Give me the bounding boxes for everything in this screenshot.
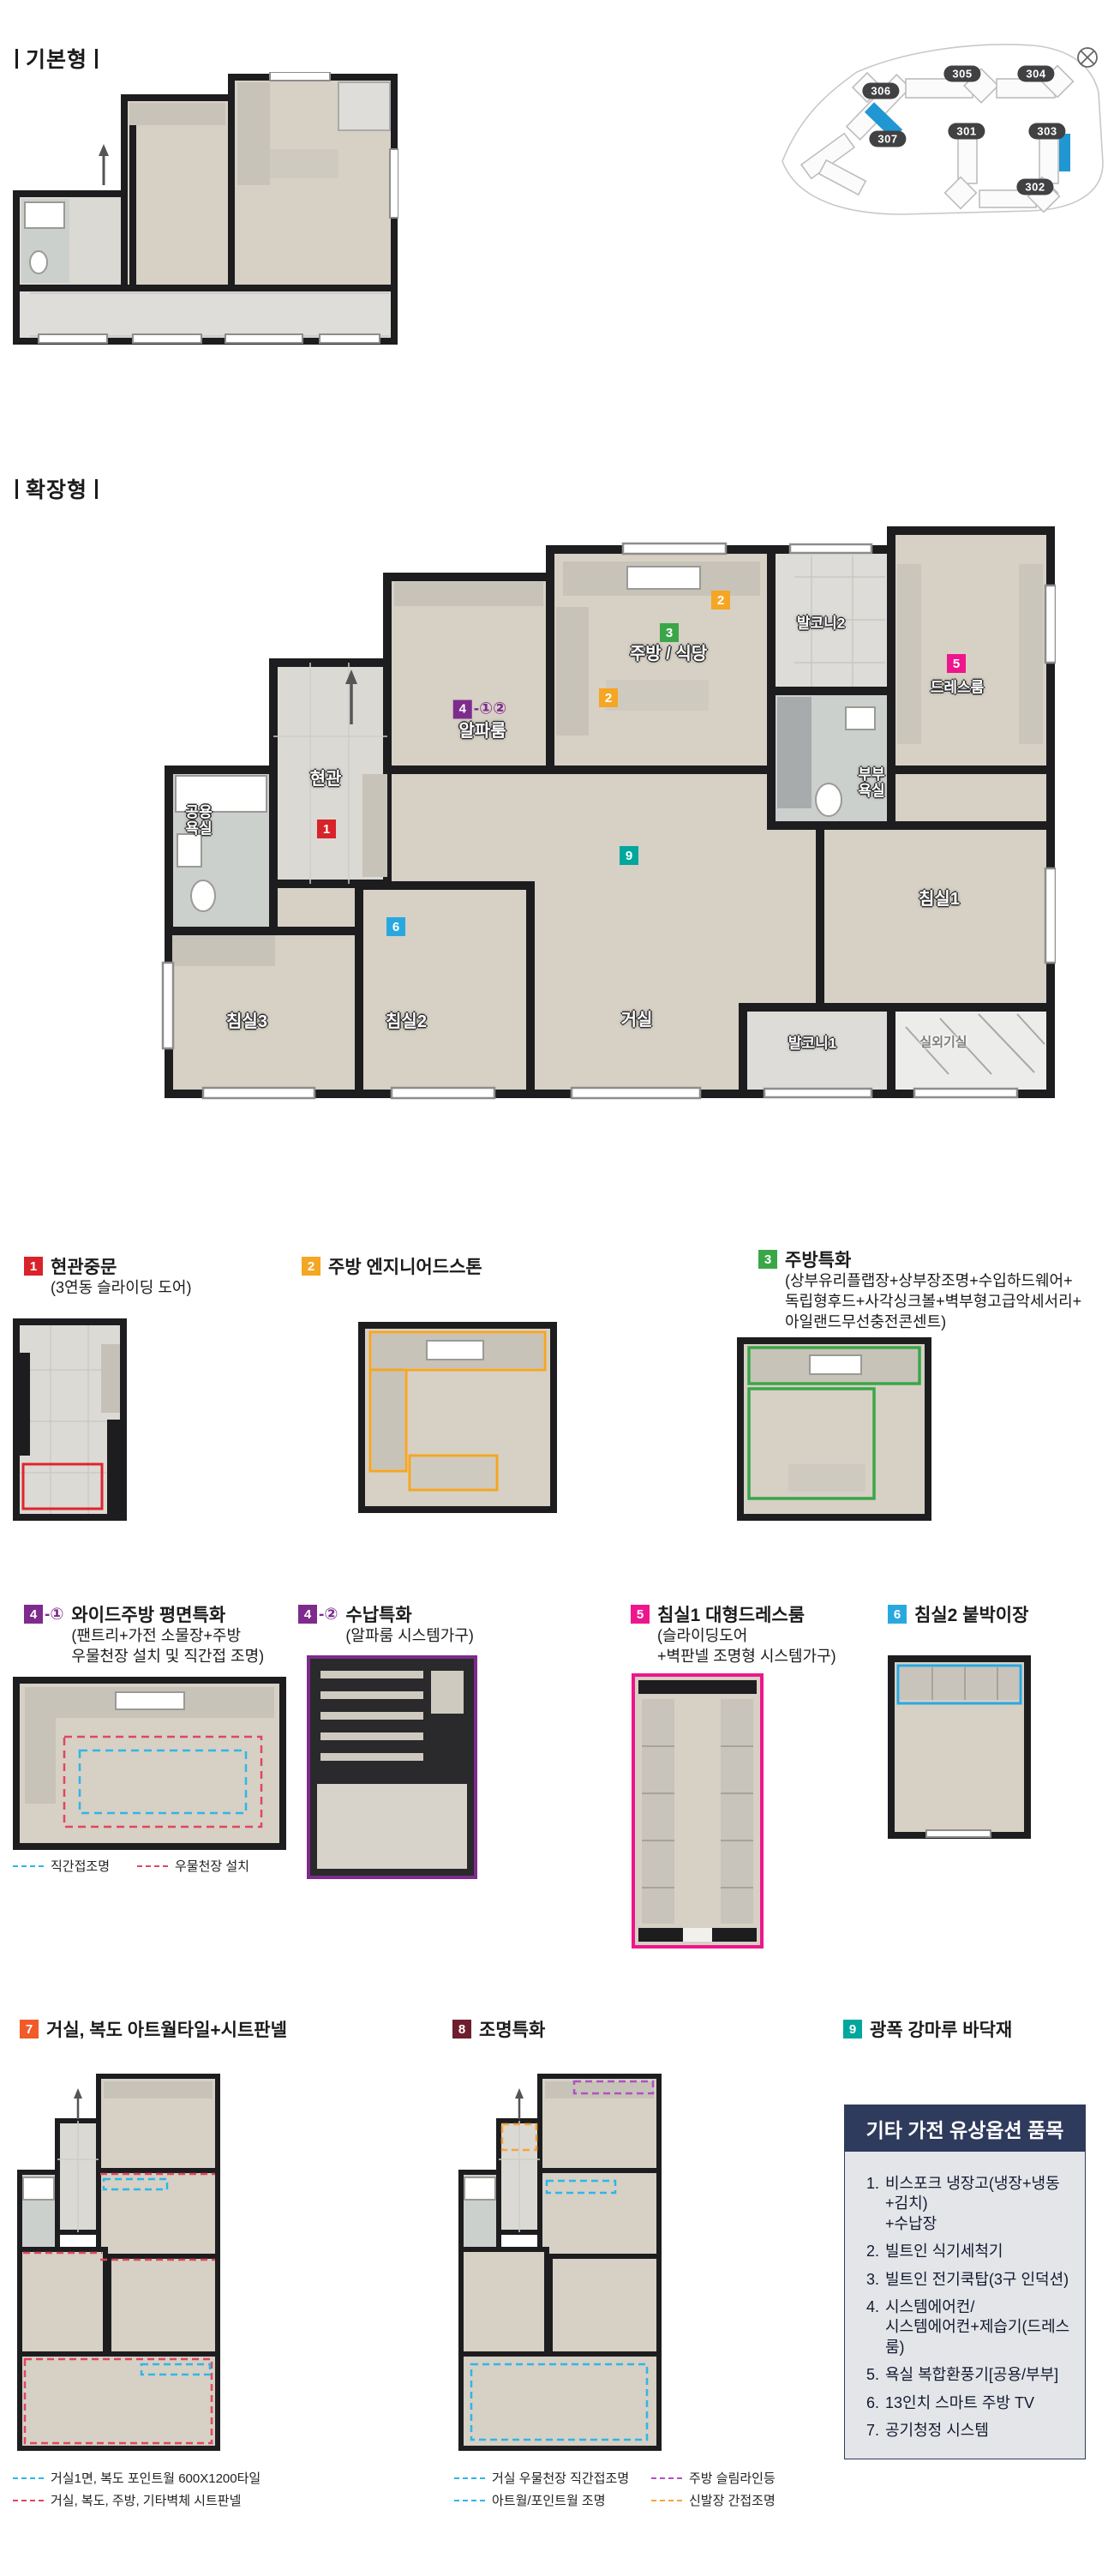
red-dash-icon xyxy=(137,1865,168,1867)
option-item: 3. 빌트인 전기쿡탑(3구 인덕션) xyxy=(860,2270,1075,2290)
legend-8-artwall: 아트월/포인트월 조명 xyxy=(454,2491,606,2509)
room-label-entry: 현관 xyxy=(310,770,342,789)
feature-8-title: 조명특화 xyxy=(479,2020,545,2041)
extended-type-label: 확장형 xyxy=(15,473,98,504)
feature-1-sub: (3연동 슬라이딩 도어) xyxy=(51,1278,191,1299)
feature-4-2-header: 4 -② 수납특화 (알파룸 시스템가구) xyxy=(298,1605,474,1647)
building-pill-303: 303 xyxy=(1028,123,1065,140)
extended-floor-plan xyxy=(143,525,1056,1102)
legend-8-shoe: 신발장 간접조명 xyxy=(651,2491,776,2509)
mini-plan-rooms xyxy=(461,2076,659,2448)
orange-dash-icon xyxy=(651,2500,682,2501)
feature-1-badge: 1 xyxy=(24,1257,43,1276)
compass-icon xyxy=(1078,48,1097,67)
cyan-dash-icon xyxy=(13,1865,44,1867)
cyan-dash-icon xyxy=(454,2500,485,2501)
room-label-ac-room: 실외기실 xyxy=(919,1036,967,1051)
divider-bar xyxy=(15,49,18,69)
feature-5-header: 5 침실1 대형드레스룸 (슬라이딩도어 +벽판넬 조명형 시스템가구) xyxy=(631,1605,836,1667)
page: 기본형 xyxy=(0,0,1114,2576)
feature-1-header: 1 현관중문 (3연동 슬라이딩 도어) xyxy=(24,1257,191,1299)
feature-4-2-sub1: (알파룸 시스템가구) xyxy=(345,1626,473,1647)
legend-8-living: 거실 우물천장 직간접조명 xyxy=(454,2469,629,2487)
red-dash-icon xyxy=(13,2500,44,2501)
room-label-kitchen: 주방 / 식당 xyxy=(630,645,707,664)
feature-6-header: 6 침실2 붙박이장 xyxy=(888,1605,1028,1626)
legend-7-sheet: 거실, 복도, 주방, 기타벽체 시트판넬 xyxy=(13,2491,241,2509)
paid-options-box: 기타 가전 유상옵션 품목 1. 비스포크 냉장고(냉장+냉동+김치)+수납장 … xyxy=(844,2105,1086,2459)
legend-4-1-indirect: 직간접조명 xyxy=(13,1857,110,1875)
feature-8-badge: 8 xyxy=(452,2020,471,2039)
option-item: 7. 공기청정 시스템 xyxy=(860,2421,1075,2441)
building-pill-304: 304 xyxy=(1017,66,1054,82)
cyan-dash-icon xyxy=(454,2477,485,2479)
feature-8-image xyxy=(454,2069,666,2455)
feature-3-sub2: 독립형후드+사각싱크볼+벽부형고급악세서리+ xyxy=(785,1292,1081,1312)
feature-4-2-suffix: -② xyxy=(319,1605,338,1624)
room-label-master-bath: 부부욕실 xyxy=(858,766,884,799)
plan-badge-6: 6 xyxy=(386,917,405,936)
feature-6-badge: 6 xyxy=(888,1605,907,1624)
legend-4-1-ceiling: 우물천장 설치 xyxy=(137,1857,249,1875)
feature-5-title: 침실1 대형드레스룸 xyxy=(657,1605,836,1626)
legend-8-kitchen: 주방 슬림라인등 xyxy=(651,2469,776,2487)
cyan-dash-icon xyxy=(13,2477,44,2479)
feature-3-badge: 3 xyxy=(758,1250,777,1269)
basic-floor-plan xyxy=(13,72,398,351)
building-pill-301: 301 xyxy=(948,123,985,140)
room-label-living: 거실 xyxy=(621,1011,653,1030)
feature-5-image xyxy=(632,1673,764,1949)
plan-badge-2b: 2 xyxy=(599,688,618,707)
paid-options-title: 기타 가전 유상옵션 품목 xyxy=(845,2105,1085,2152)
feature-4-1-image xyxy=(13,1677,286,1850)
feature-5-sub1: (슬라이딩도어 xyxy=(657,1626,836,1647)
feature-3-sub1: (상부유리플랩장+상부장조명+수입하드웨어+ xyxy=(785,1271,1081,1292)
room-label-bedroom3: 침실3 xyxy=(226,1012,267,1031)
feature-4-1-suffix: -① xyxy=(45,1605,63,1624)
option-item: 5. 욕실 복합환풍기[공용/부부] xyxy=(860,2365,1075,2385)
feature-4-2-badge: 4 xyxy=(298,1605,317,1624)
plan-badge-5: 5 xyxy=(947,654,966,673)
room-label-bedroom1: 침실1 xyxy=(919,890,960,909)
option-item: 6. 13인치 스마트 주방 TV xyxy=(860,2393,1075,2413)
plan-badge-4: 4-①② xyxy=(453,700,507,719)
room-label-common-bath: 공용욕실 xyxy=(185,804,212,837)
extended-type-text: 확장형 xyxy=(26,473,87,504)
feature-4-1-sub1: (팬트리+가전 소물장+주방 xyxy=(71,1626,264,1647)
divider-bar xyxy=(95,479,98,499)
feature-5-sub2: +벽판넬 조명형 시스템가구) xyxy=(657,1647,836,1667)
feature-4-1-badge: 4 xyxy=(24,1605,43,1624)
option-item: 4. 시스템에어컨/시스템에어컨+제습기(드레스룸) xyxy=(860,2297,1075,2357)
divider-bar xyxy=(15,479,18,499)
feature-9-header: 9 광폭 강마루 바닥재 xyxy=(843,2020,1012,2041)
room-label-dress-room: 드레스룸 xyxy=(931,679,985,695)
feature-2-badge: 2 xyxy=(302,1257,320,1276)
room-label-bedroom2: 침실2 xyxy=(386,1012,427,1031)
feature-7-image xyxy=(13,2069,225,2455)
purple-dash-icon xyxy=(651,2477,682,2479)
feature-7-header: 7 거실, 복도 아트월타일+시트판넬 xyxy=(20,2020,287,2041)
building-pill-302: 302 xyxy=(1016,179,1053,195)
feature-1-title: 현관중문 xyxy=(51,1257,191,1278)
entry-arrow xyxy=(99,144,109,185)
feature-3-header: 3 주방특화 (상부유리플랩장+상부장조명+수입하드웨어+ 독립형후드+사각싱크… xyxy=(758,1250,1081,1332)
feature-3-image xyxy=(737,1337,931,1521)
plan-badge-9: 9 xyxy=(620,846,638,865)
feature-4-2-image xyxy=(307,1655,477,1879)
option-item: 2. 빌트인 식기세척기 xyxy=(860,2242,1075,2261)
option-item: 1. 비스포크 냉장고(냉장+냉동+김치)+수납장 xyxy=(860,2174,1075,2234)
room-label-alpha-room: 알파룸 xyxy=(458,722,506,741)
feature-3-title: 주방특화 xyxy=(785,1250,1081,1271)
feature-8-header: 8 조명특화 xyxy=(452,2020,545,2041)
divider-bar xyxy=(95,49,98,69)
feature-2-image xyxy=(358,1322,557,1513)
basic-type-label: 기본형 xyxy=(15,43,98,74)
feature-6-image xyxy=(888,1655,1031,1839)
building-pill-306: 306 xyxy=(862,83,899,99)
plan-badge-1: 1 xyxy=(317,820,336,838)
feature-7-badge: 7 xyxy=(20,2020,39,2039)
plan-badge-3: 3 xyxy=(660,623,679,642)
feature-4-1-title: 와이드주방 평면특화 xyxy=(71,1605,264,1626)
paid-options-list: 1. 비스포크 냉장고(냉장+냉동+김치)+수납장 2. 빌트인 식기세척기 3… xyxy=(845,2152,1085,2441)
room-label-balcony1: 발코니1 xyxy=(788,1035,836,1051)
feature-5-badge: 5 xyxy=(631,1605,650,1624)
feature-4-1-header: 4 -① 와이드주방 평면특화 (팬트리+가전 소물장+주방 우물천장 설치 및… xyxy=(24,1605,264,1667)
feature-7-title: 거실, 복도 아트월타일+시트판넬 xyxy=(46,2020,287,2041)
feature-1-image xyxy=(13,1318,127,1521)
basic-type-text: 기본형 xyxy=(26,43,87,74)
feature-4-1-sub2: 우물천장 설치 및 직간접 조명) xyxy=(71,1647,264,1667)
feature-2-title: 주방 엔지니어드스톤 xyxy=(328,1257,482,1278)
feature-2-header: 2 주방 엔지니어드스톤 xyxy=(302,1257,482,1278)
feature-4-2-title: 수납특화 xyxy=(345,1605,473,1626)
feature-3-sub3: 아일랜드무선충전콘센트) xyxy=(785,1312,1081,1333)
legend-7-tile: 거실1면, 복도 포인트월 600X1200타일 xyxy=(13,2469,261,2487)
room-label-balcony2: 발코니2 xyxy=(797,615,845,631)
feature-9-badge: 9 xyxy=(843,2020,862,2039)
feature-6-title: 침실2 붙박이장 xyxy=(914,1605,1028,1626)
building-pill-307: 307 xyxy=(869,131,906,147)
plan-badge-2a: 2 xyxy=(711,591,730,609)
mini-plan-rooms xyxy=(20,2076,218,2448)
feature-9-title: 광폭 강마루 바닥재 xyxy=(870,2020,1012,2041)
building-pill-305: 305 xyxy=(943,66,980,82)
